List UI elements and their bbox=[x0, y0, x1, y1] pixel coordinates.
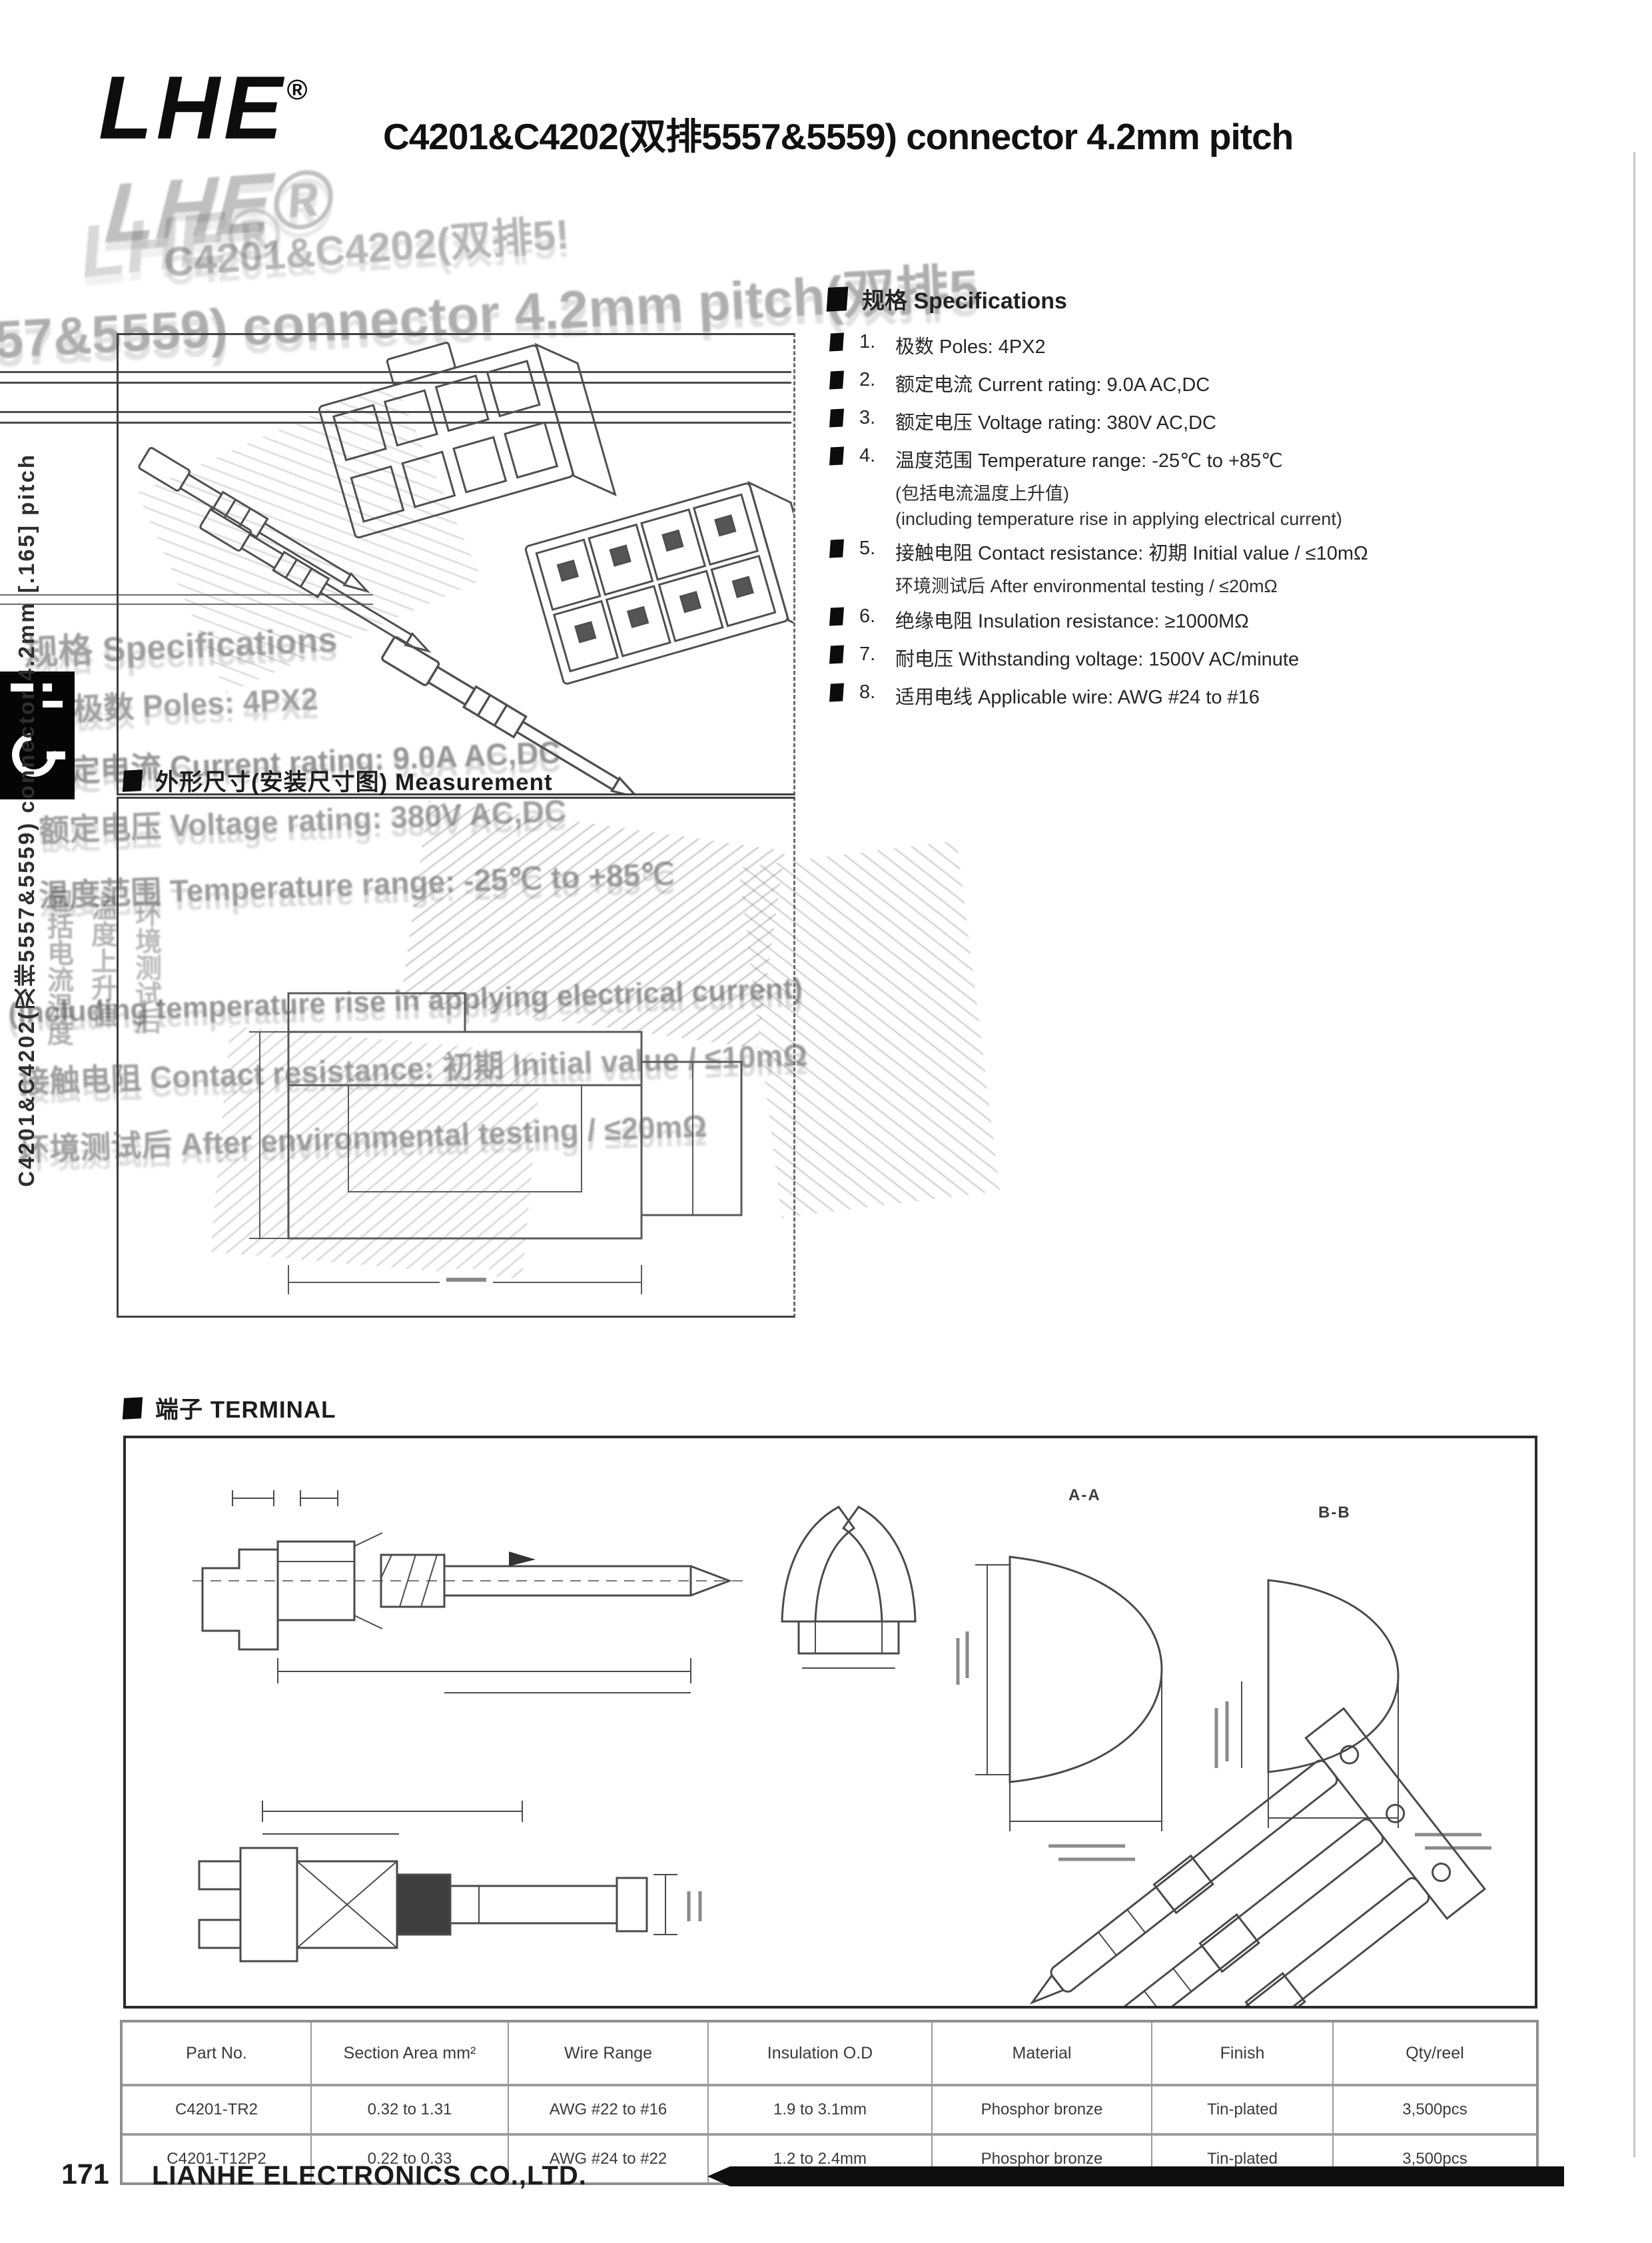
table-header-finish: Finish bbox=[1152, 2022, 1334, 2086]
table-header-section-area: Section Area mm² bbox=[312, 2022, 509, 2086]
terminal-drawing bbox=[126, 1438, 1535, 2006]
section-a-a-view bbox=[958, 1557, 1162, 1859]
brand-logo-text: LHE bbox=[99, 58, 286, 158]
spec-item-text: 额定电压 Voltage rating: 380V AC,DC bbox=[895, 407, 1216, 435]
spec-item-text: 接触电阻 Contact resistance: 初期 Initial valu… bbox=[895, 538, 1368, 566]
terminal-variant-view bbox=[199, 1801, 700, 1961]
spec-item-current-rating: 2. 额定电流 Current rating: 9.0A AC,DC bbox=[827, 369, 1553, 397]
registered-mark: ® bbox=[286, 73, 307, 105]
section-bullet-icon bbox=[827, 286, 849, 312]
crimp-terminal bbox=[138, 447, 373, 602]
table-header-part-no: Part No. bbox=[123, 2022, 312, 2086]
spec-item-text: 额定电流 Current rating: 9.0A AC,DC bbox=[895, 369, 1210, 397]
spec-item-text: 温度范围 Temperature range: -25℃ to +85℃ bbox=[895, 445, 1283, 473]
parts-table: Part No. Section Area mm² Wire Range Ins… bbox=[120, 2020, 1539, 2185]
spec-item-temperature-range: 4. 温度范围 Temperature range: -25℃ to +85℃ bbox=[827, 445, 1553, 473]
section-bullet-icon bbox=[123, 1397, 143, 1419]
spec-item-text: 耐电压 Withstanding voltage: 1500V AC/minut… bbox=[895, 644, 1299, 672]
terminal-header-label: 端子 TERMINAL bbox=[155, 1391, 336, 1425]
specifications-header-label: 规格 Specifications bbox=[862, 282, 1067, 315]
brand-logo: LHE® bbox=[99, 56, 307, 159]
specifications-header: 规格 Specifications bbox=[827, 282, 1553, 315]
chained-terminals-view bbox=[1008, 1709, 1485, 2006]
spec-item-text: 绝缘电阻 Insulation resistance: ≥1000MΩ bbox=[895, 606, 1249, 634]
item-bullet-icon bbox=[829, 683, 844, 701]
item-bullet-icon bbox=[829, 539, 844, 558]
spec-item-text: 极数 Poles: 4PX2 bbox=[895, 331, 1046, 359]
spec-subline-temp-en: (including temperature rise in applying … bbox=[827, 509, 1553, 530]
page-edge-line bbox=[1633, 152, 1635, 2157]
measurement-header-label: 外形尺寸(安装尺寸图) Measurement bbox=[155, 763, 553, 797]
spec-item-poles: 1. 极数 Poles: 4PX2 bbox=[827, 331, 1553, 359]
page-number: 171 bbox=[61, 2158, 109, 2191]
item-bullet-icon bbox=[829, 446, 844, 465]
item-bullet-icon bbox=[829, 408, 844, 427]
spec-subline-contact-after: 环境测试后 After environmental testing / ≤20m… bbox=[827, 572, 1553, 598]
spec-item-contact-resistance: 5. 接触电阻 Contact resistance: 初期 Initial v… bbox=[827, 538, 1553, 566]
sidebar-vertical-title: C4201&C4202(双排5557&5559) connector 4.2mm… bbox=[11, 453, 52, 1452]
item-bullet-icon bbox=[829, 607, 844, 626]
item-bullet-icon bbox=[829, 645, 844, 664]
datasheet-page: LHE® LHE® C4201&C4202(双排5! 557&5559) con… bbox=[0, 0, 1652, 2243]
table-cell: C4201-TR2 bbox=[123, 2086, 312, 2136]
company-name: LIANHE ELECTRONICS CO.,LTD. bbox=[152, 2161, 587, 2191]
table-cell: Phosphor bronze bbox=[933, 2086, 1152, 2136]
connector-isometric-drawing bbox=[119, 335, 793, 793]
spec-item-text: 适用电线 Applicable wire: AWG #24 to #16 bbox=[895, 681, 1260, 709]
section-a-a-label: A-A bbox=[1068, 1486, 1101, 1505]
table-header-wire-range: Wire Range bbox=[509, 2022, 709, 2086]
table-cell: 1.9 to 3.1mm bbox=[709, 2086, 933, 2136]
spec-subline-temp-cn: (包括电流温度上升值) bbox=[827, 479, 1553, 505]
spec-item-withstanding-voltage: 7. 耐电压 Withstanding voltage: 1500V AC/mi… bbox=[827, 644, 1553, 672]
terminal-section-header: 端子 TERMINAL bbox=[123, 1391, 336, 1425]
item-bullet-icon bbox=[829, 370, 844, 389]
table-cell: 3,500pcs bbox=[1334, 2086, 1536, 2136]
table-header-material: Material bbox=[933, 2022, 1152, 2086]
table-cell: AWG #22 to #16 bbox=[509, 2086, 709, 2136]
specifications-section: 规格 Specifications 1. 极数 Poles: 4PX2 2. 额… bbox=[827, 282, 1553, 719]
dimension-drawing-box bbox=[117, 797, 795, 1318]
table-cell: 0.32 to 1.31 bbox=[312, 2086, 509, 2136]
spec-item-voltage-rating: 3. 额定电压 Voltage rating: 380V AC,DC bbox=[827, 407, 1553, 435]
measurement-section-header: 外形尺寸(安装尺寸图) Measurement bbox=[123, 763, 553, 797]
section-b-b-label: B-B bbox=[1318, 1504, 1351, 1522]
item-bullet-icon bbox=[829, 332, 844, 351]
footer-bar bbox=[707, 2166, 1564, 2186]
table-header-insulation-od: Insulation O.D bbox=[709, 2022, 933, 2086]
terminal-drawing-box: A-A B-B bbox=[123, 1436, 1537, 2009]
plug-housing bbox=[525, 473, 793, 714]
receptacle-housing bbox=[311, 335, 615, 566]
terminal-side-view bbox=[193, 1490, 745, 1693]
terminal-front-view bbox=[782, 1507, 915, 1668]
connector-dimension-drawing bbox=[119, 799, 793, 1316]
section-bullet-icon bbox=[123, 769, 143, 791]
table-cell: Tin-plated bbox=[1152, 2086, 1334, 2136]
page-title: C4201&C4202(双排5557&5559) connector 4.2mm… bbox=[383, 107, 1293, 160]
table-header-qty-reel: Qty/reel bbox=[1334, 2022, 1536, 2086]
spec-item-applicable-wire: 8. 适用电线 Applicable wire: AWG #24 to #16 bbox=[827, 681, 1553, 709]
spec-item-insulation-resistance: 6. 绝缘电阻 Insulation resistance: ≥1000MΩ bbox=[827, 606, 1553, 634]
isometric-drawing-box bbox=[117, 333, 795, 795]
